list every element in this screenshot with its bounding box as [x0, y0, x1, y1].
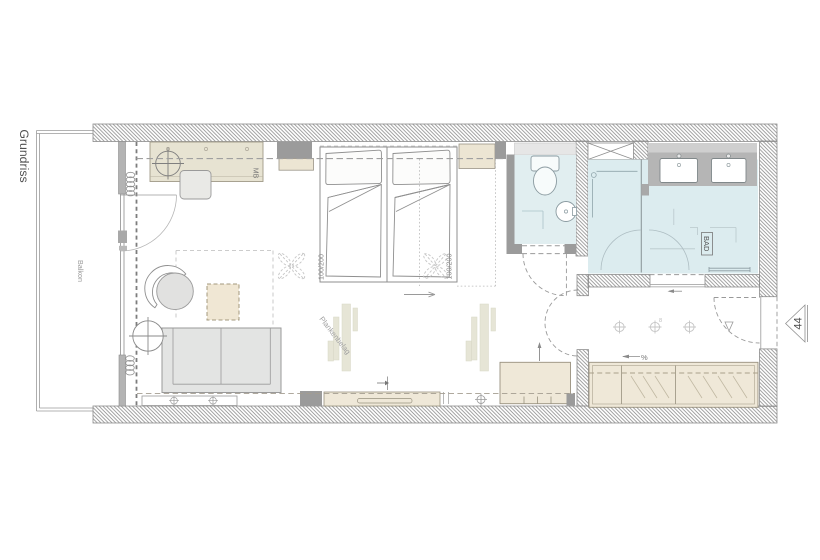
svg-text:BAD: BAD [702, 236, 711, 252]
svg-text:%: % [641, 353, 648, 362]
svg-text:100/200: 100/200 [445, 254, 454, 280]
svg-text:Grundriss: Grundriss [17, 129, 31, 182]
svg-text:Balkon: Balkon [76, 260, 85, 282]
svg-text:MB: MB [252, 168, 259, 179]
svg-text:100/200: 100/200 [317, 254, 326, 280]
svg-text:44: 44 [793, 317, 805, 329]
svg-text:8: 8 [659, 318, 662, 324]
